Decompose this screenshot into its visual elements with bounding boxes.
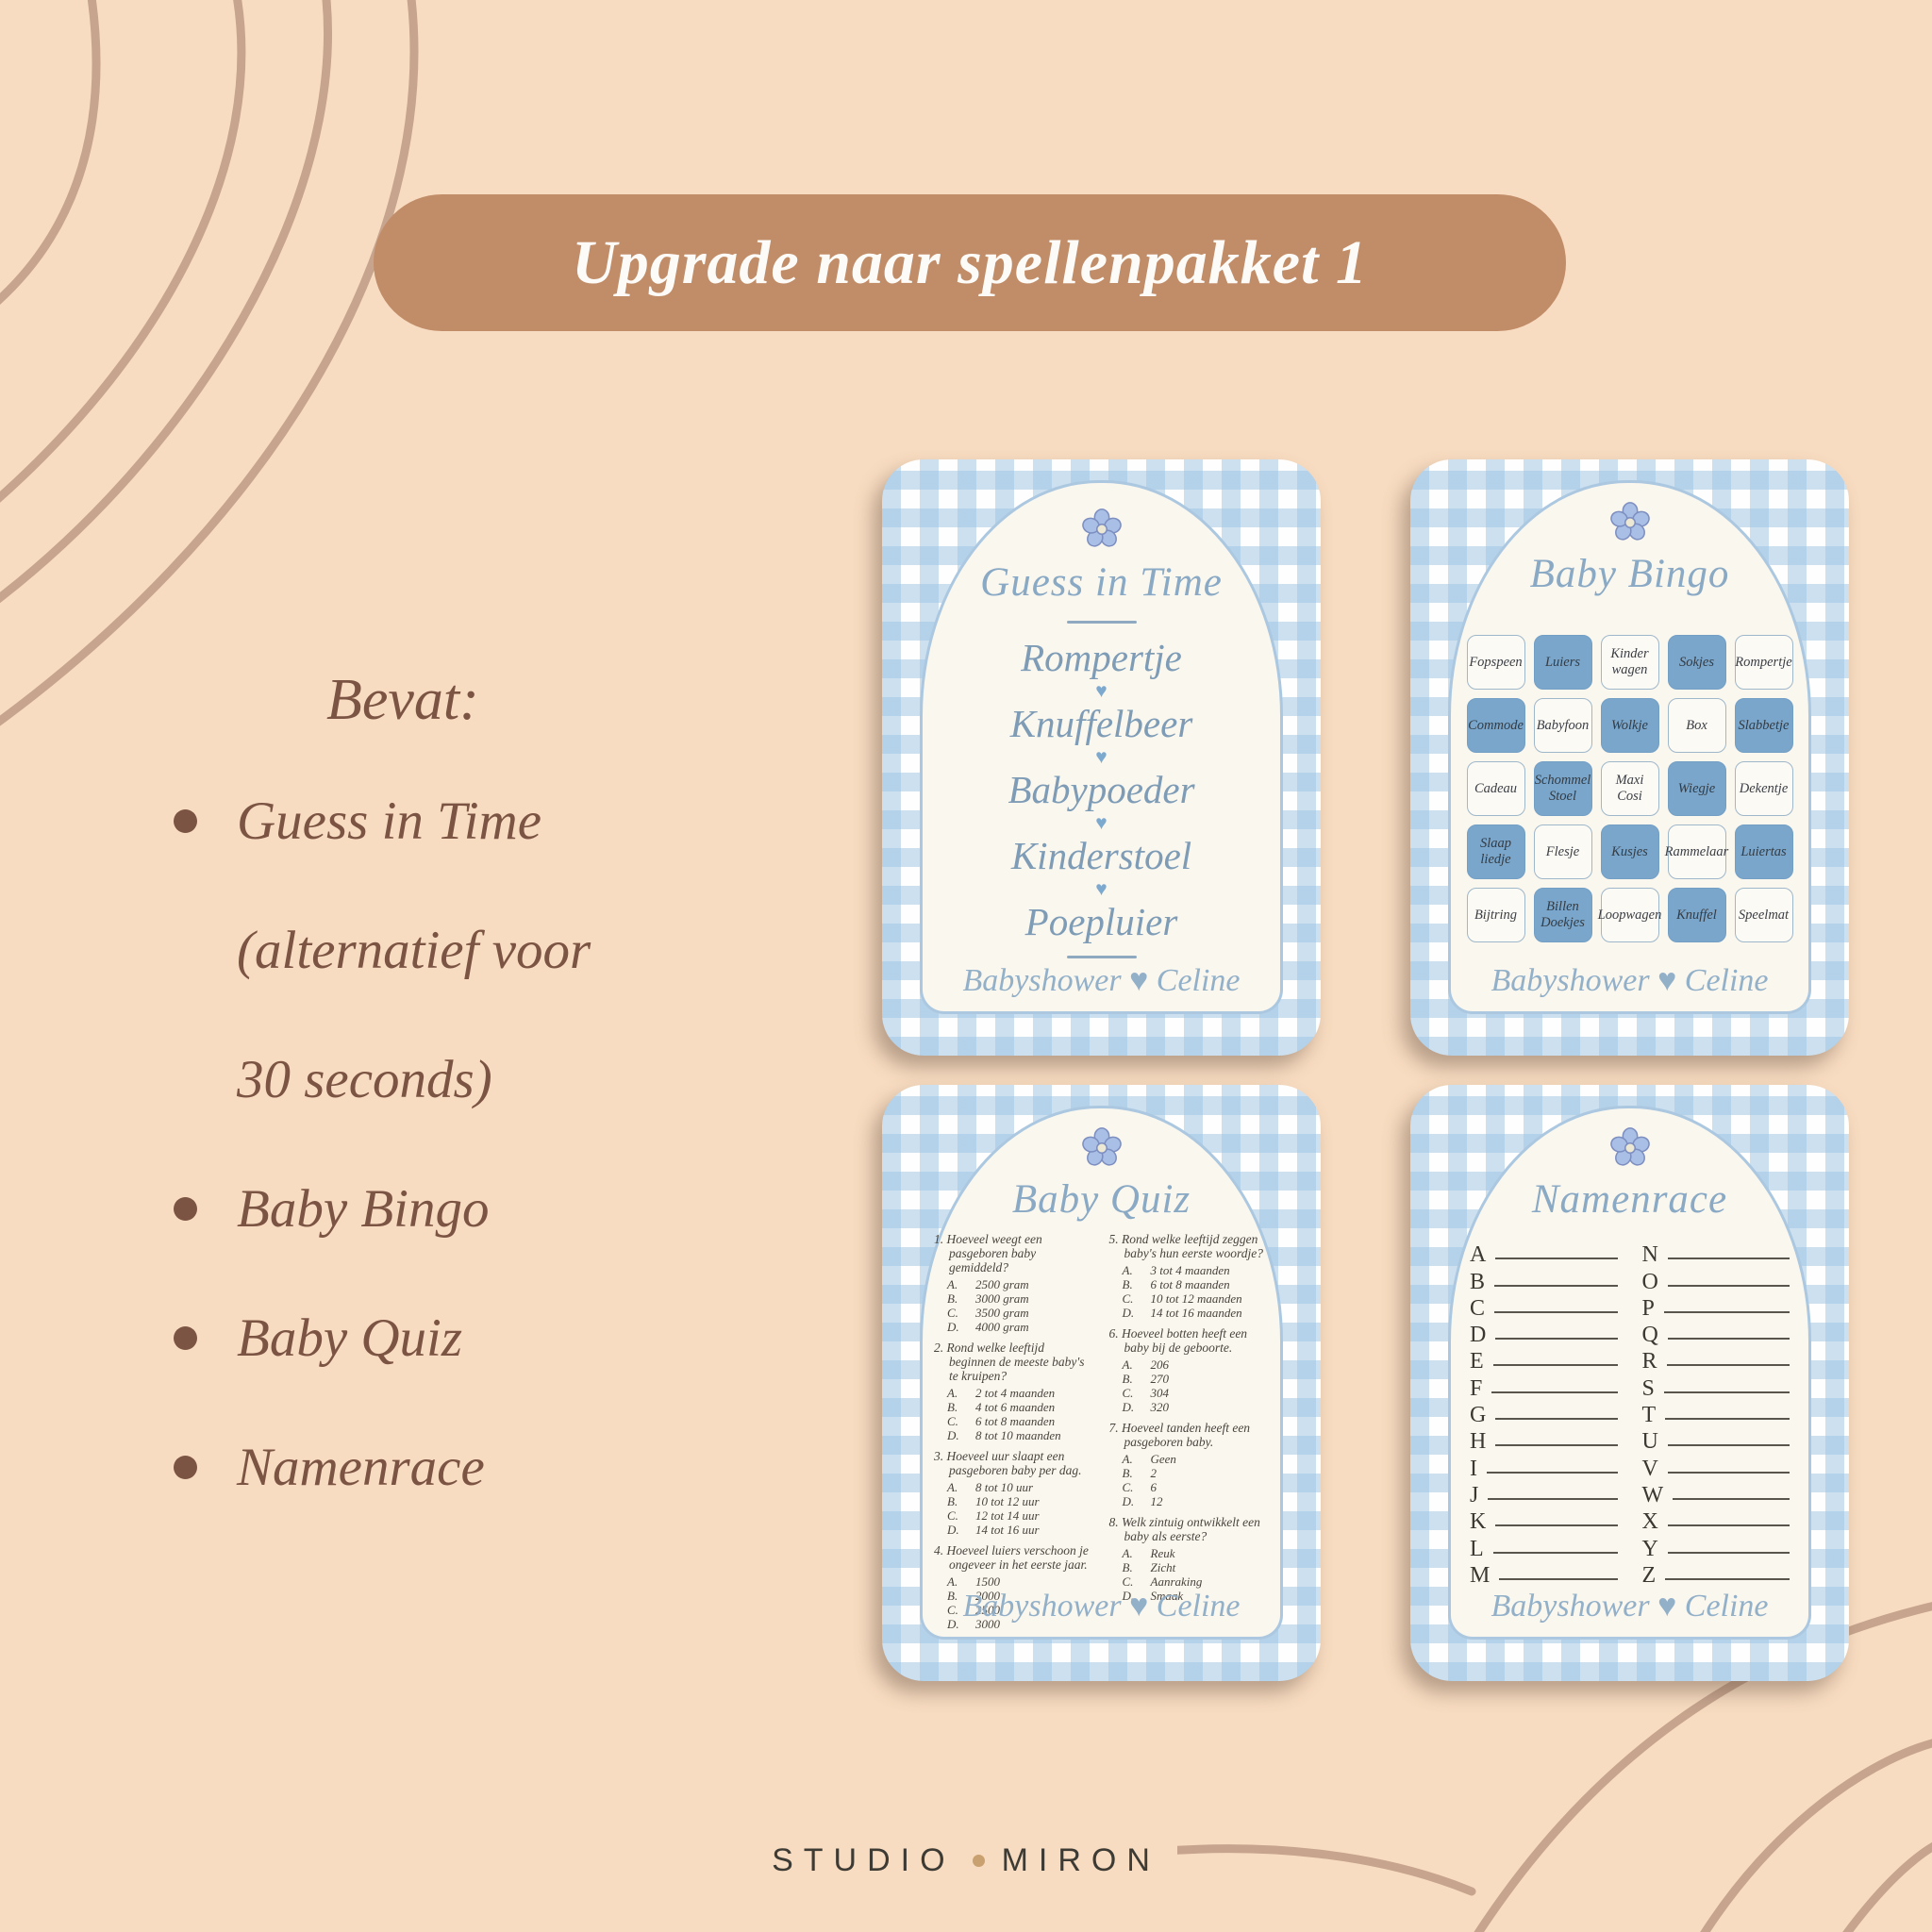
card-title: Baby Quiz	[1012, 1175, 1191, 1224]
write-line	[1668, 1257, 1790, 1259]
bullet-dot	[174, 1197, 197, 1221]
card-panel: Namenrace A B C D E F G H I J K L M	[1448, 1106, 1811, 1640]
write-line	[1493, 1364, 1618, 1366]
option-text: 270	[1151, 1372, 1270, 1386]
option-letter: C.	[1123, 1386, 1151, 1400]
options: A.3 tot 4 maanden B.6 tot 8 maanden C.10…	[1109, 1263, 1270, 1320]
option: A.8 tot 10 uur	[947, 1480, 1094, 1494]
letter-column-right: N O P Q R S T U V W X Y Z	[1642, 1240, 1790, 1587]
write-line	[1494, 1311, 1617, 1313]
letter-row: Q	[1642, 1320, 1790, 1346]
card-title: Baby Bingo	[1530, 550, 1730, 599]
option: A.2 tot 4 maanden	[947, 1386, 1094, 1400]
heart-icon: ♥	[1095, 880, 1107, 897]
bingo-cell: Luiers	[1534, 635, 1592, 690]
option: B.6 tot 8 maanden	[1123, 1277, 1270, 1291]
write-line	[1668, 1444, 1790, 1446]
letter-row: T	[1642, 1400, 1790, 1426]
option: B.270	[1123, 1372, 1270, 1386]
card-baby-quiz: Baby Quiz 1. Hoeveel weegt een pasgebore…	[882, 1085, 1321, 1681]
option-letter: D.	[947, 1523, 975, 1537]
option: D.14 tot 16 maanden	[1123, 1306, 1270, 1320]
letter: K	[1470, 1510, 1486, 1533]
option-letter: A.	[947, 1386, 975, 1400]
write-line	[1664, 1391, 1790, 1393]
option-text: 14 tot 16 maanden	[1151, 1306, 1270, 1320]
divider	[1067, 621, 1137, 624]
write-line	[1668, 1524, 1790, 1526]
letter-row: V	[1642, 1453, 1790, 1479]
option: D.4000 gram	[947, 1320, 1094, 1334]
letter-row: X	[1642, 1507, 1790, 1533]
letter: B	[1470, 1271, 1485, 1293]
game-word: Poepluier	[1025, 897, 1178, 946]
quiz-question: 3. Hoeveel uur slaapt een pasgeboren bab…	[934, 1449, 1094, 1537]
letter-row: Y	[1642, 1533, 1790, 1559]
bingo-cell: Commode	[1467, 698, 1525, 753]
game-word: Kinderstoel	[1011, 831, 1191, 880]
brand-word-right: MIRON	[1002, 1841, 1160, 1879]
letter-row: Z	[1642, 1560, 1790, 1587]
card-title: Guess in Time	[980, 558, 1223, 608]
list-item: Baby Bingo	[160, 1144, 840, 1274]
option-letter: C.	[1123, 1291, 1151, 1306]
question-text: 5. Rond welke leeftijd zeggen baby's hun…	[1109, 1232, 1270, 1260]
letter-column-left: A B C D E F G H I J K L M	[1470, 1240, 1618, 1587]
bingo-cell: Knuffel	[1668, 888, 1726, 942]
letter: A	[1470, 1243, 1486, 1266]
question-text: 2. Rond welke leeftijd beginnen de meest…	[934, 1341, 1094, 1383]
letter: W	[1642, 1484, 1664, 1507]
letter-row: O	[1642, 1266, 1790, 1292]
write-line	[1499, 1578, 1617, 1580]
option-text: Reuk	[1151, 1546, 1270, 1560]
brand-dot-icon	[973, 1855, 985, 1867]
option-text: 6 tot 8 maanden	[975, 1414, 1094, 1428]
option: A.3 tot 4 maanden	[1123, 1263, 1270, 1277]
bingo-cell: Babyfoon	[1534, 698, 1592, 753]
bingo-cell: Bijtring	[1467, 888, 1525, 942]
question-text: 3. Hoeveel uur slaapt een pasgeboren bab…	[934, 1449, 1094, 1477]
letter: T	[1642, 1404, 1657, 1426]
option-letter: C.	[947, 1414, 975, 1428]
letter-row: W	[1642, 1480, 1790, 1507]
option-letter: A.	[947, 1277, 975, 1291]
options: A.8 tot 10 uur B.10 tot 12 uur C.12 tot …	[934, 1480, 1094, 1537]
option-text: 2 tot 4 maanden	[975, 1386, 1094, 1400]
bingo-cell: Loopwagen	[1601, 888, 1659, 942]
list-item-text: Baby Quiz	[237, 1274, 462, 1403]
option-text: Zicht	[1151, 1560, 1270, 1574]
letter: D	[1470, 1324, 1486, 1346]
card-guess-in-time: Guess in Time Rompertje ♥ Knuffelbeer ♥ …	[882, 459, 1321, 1056]
option: A.Reuk	[1123, 1546, 1270, 1560]
question-text: 4. Hoeveel luiers verschoon je ongeveer …	[934, 1543, 1094, 1572]
letter: C	[1470, 1297, 1485, 1320]
flower-icon	[1608, 501, 1652, 544]
letter-row: N	[1642, 1240, 1790, 1266]
option-text: 4000 gram	[975, 1320, 1094, 1334]
card-baby-bingo: Baby Bingo Fopspeen Luiers Kinder wagen …	[1410, 459, 1849, 1056]
flower-icon	[1608, 1126, 1652, 1170]
bingo-cell: Flesje	[1534, 824, 1592, 879]
bingo-cell: Wiegje	[1668, 761, 1726, 816]
option: B.2	[1123, 1466, 1270, 1480]
option: C.304	[1123, 1386, 1270, 1400]
option-letter: B.	[947, 1400, 975, 1414]
quiz-question: 6. Hoeveel botten heeft een baby bij de …	[1109, 1326, 1270, 1414]
bingo-cell: Dekentje	[1735, 761, 1793, 816]
letter: X	[1642, 1510, 1658, 1533]
heart-icon: ♥	[1095, 748, 1107, 765]
write-line	[1491, 1391, 1617, 1393]
bingo-cell: Slaap liedje	[1467, 824, 1525, 879]
card-footer: Babyshower ♥ Celine	[923, 1589, 1280, 1624]
option-letter: D.	[947, 1320, 975, 1334]
option: A.206	[1123, 1357, 1270, 1372]
bingo-cell: Slabbetje	[1735, 698, 1793, 753]
letter-row: K	[1470, 1507, 1618, 1533]
letter: I	[1470, 1457, 1477, 1480]
bingo-cell: Billen Doekjes	[1534, 888, 1592, 942]
heart-icon: ♥	[1095, 682, 1107, 699]
card-title: Namenrace	[1532, 1175, 1727, 1224]
option-text: 3500 gram	[975, 1306, 1094, 1320]
write-line	[1495, 1444, 1617, 1446]
word-list: Rompertje ♥ Knuffelbeer ♥ Babypoeder ♥ K…	[1008, 633, 1194, 946]
options: A.206 B.270 C.304 D.320	[1109, 1357, 1270, 1414]
option: A.1500	[947, 1574, 1094, 1589]
letter: O	[1642, 1271, 1658, 1293]
letter: P	[1642, 1297, 1655, 1320]
option-letter: A.	[1123, 1357, 1151, 1372]
contains-list: Guess in Time (alternatief voor 30 secon…	[160, 757, 840, 1532]
letter-row: U	[1642, 1426, 1790, 1453]
question-text: 7. Hoeveel tanden heeft een pasgeboren b…	[1109, 1421, 1270, 1449]
letter: H	[1470, 1430, 1486, 1453]
options: A.2 tot 4 maanden B.4 tot 6 maanden C.6 …	[934, 1386, 1094, 1442]
write-line	[1665, 1578, 1790, 1580]
letter-row: A	[1470, 1240, 1618, 1266]
option: C.Aanraking	[1123, 1574, 1270, 1589]
letter: V	[1642, 1457, 1658, 1480]
option-text: Aanraking	[1151, 1574, 1270, 1589]
letter: F	[1470, 1377, 1482, 1400]
write-line	[1665, 1418, 1790, 1420]
option-letter: C.	[1123, 1574, 1151, 1589]
write-line	[1493, 1552, 1618, 1554]
option: B.4 tot 6 maanden	[947, 1400, 1094, 1414]
option: D.320	[1123, 1400, 1270, 1414]
letter-row: L	[1470, 1533, 1618, 1559]
letter-row: C	[1470, 1293, 1618, 1320]
write-line	[1668, 1285, 1790, 1287]
quiz-columns: 1. Hoeveel weegt een pasgeboren baby gem…	[923, 1232, 1280, 1638]
bullet-dot	[174, 1456, 197, 1479]
option-letter: D.	[1123, 1494, 1151, 1508]
option-letter: C.	[947, 1508, 975, 1523]
option: A.2500 gram	[947, 1277, 1094, 1291]
option-letter: D.	[947, 1428, 975, 1442]
option-text: Geen	[1151, 1452, 1270, 1466]
option-text: 12 tot 14 uur	[975, 1508, 1094, 1523]
letter-row: B	[1470, 1266, 1618, 1292]
write-line	[1495, 1257, 1617, 1259]
option-text: 14 tot 16 uur	[975, 1523, 1094, 1537]
bingo-cell: Sokjes	[1668, 635, 1726, 690]
option-letter: D.	[1123, 1400, 1151, 1414]
bingo-cell: Wolkje	[1601, 698, 1659, 753]
option-text: 12	[1151, 1494, 1270, 1508]
letter-row: J	[1470, 1480, 1618, 1507]
option: C.6 tot 8 maanden	[947, 1414, 1094, 1428]
option-text: 8 tot 10 maanden	[975, 1428, 1094, 1442]
write-line	[1668, 1338, 1790, 1340]
list-item-text: Namenrace	[237, 1403, 485, 1532]
option: D.12	[1123, 1494, 1270, 1508]
bingo-cell: Maxi Cosi	[1601, 761, 1659, 816]
banner-title: Upgrade naar spellenpakket 1	[572, 227, 1368, 299]
option-text: 10 tot 12 maanden	[1151, 1291, 1270, 1306]
bullet-dot	[174, 1326, 197, 1350]
letter: J	[1470, 1484, 1478, 1507]
game-word: Knuffelbeer	[1010, 699, 1193, 748]
write-line	[1668, 1552, 1790, 1554]
option: D.8 tot 10 maanden	[947, 1428, 1094, 1442]
option-letter: B.	[1123, 1560, 1151, 1574]
option-text: 8 tot 10 uur	[975, 1480, 1094, 1494]
letter-row: G	[1470, 1400, 1618, 1426]
option-text: 3 tot 4 maanden	[1151, 1263, 1270, 1277]
heart-icon: ♥	[1095, 814, 1107, 831]
option-letter: B.	[1123, 1466, 1151, 1480]
letter: S	[1642, 1377, 1655, 1400]
option-text: 1500	[975, 1574, 1094, 1589]
letter-row: I	[1470, 1453, 1618, 1479]
bingo-cell: Kusjes	[1601, 824, 1659, 879]
card-panel: Guess in Time Rompertje ♥ Knuffelbeer ♥ …	[920, 480, 1283, 1014]
option-text: 206	[1151, 1357, 1270, 1372]
bingo-cell: Kinder wagen	[1601, 635, 1659, 690]
option-letter: B.	[1123, 1277, 1151, 1291]
flower-icon	[1080, 508, 1124, 551]
option-letter: D.	[1123, 1306, 1151, 1320]
quiz-question: 5. Rond welke leeftijd zeggen baby's hun…	[1109, 1232, 1270, 1320]
quiz-question: 1. Hoeveel weegt een pasgeboren baby gem…	[934, 1232, 1094, 1334]
letter: M	[1470, 1564, 1490, 1587]
divider	[1067, 956, 1137, 958]
letter-row: M	[1470, 1560, 1618, 1587]
letter: Z	[1642, 1564, 1657, 1587]
options: A.2500 gram B.3000 gram C.3500 gram D.40…	[934, 1277, 1094, 1334]
letter-row: P	[1642, 1293, 1790, 1320]
write-line	[1495, 1338, 1617, 1340]
letter: Q	[1642, 1324, 1658, 1346]
letter: G	[1470, 1404, 1486, 1426]
option-text: 320	[1151, 1400, 1270, 1414]
banner: Upgrade naar spellenpakket 1	[374, 194, 1566, 331]
option: C.3500 gram	[947, 1306, 1094, 1320]
letter-columns: A B C D E F G H I J K L M N O P	[1451, 1240, 1808, 1587]
option-letter: B.	[1123, 1372, 1151, 1386]
list-item: Guess in Time (alternatief voor 30 secon…	[160, 757, 840, 1144]
write-line	[1667, 1364, 1790, 1366]
option-letter: C.	[947, 1306, 975, 1320]
write-line	[1664, 1311, 1790, 1313]
letter-row: F	[1470, 1373, 1618, 1399]
write-line	[1495, 1418, 1617, 1420]
game-word: Babypoeder	[1008, 765, 1194, 814]
option-letter: A.	[947, 1480, 975, 1494]
option-text: 10 tot 12 uur	[975, 1494, 1094, 1508]
option-letter: B.	[947, 1291, 975, 1306]
card-panel: Baby Quiz 1. Hoeveel weegt een pasgebore…	[920, 1106, 1283, 1640]
letter-row: E	[1470, 1346, 1618, 1373]
letter: L	[1470, 1538, 1484, 1560]
option: C.12 tot 14 uur	[947, 1508, 1094, 1523]
letter-row: S	[1642, 1373, 1790, 1399]
option-letter: B.	[947, 1494, 975, 1508]
option: A.Geen	[1123, 1452, 1270, 1466]
bingo-cell: Schommel Stoel	[1534, 761, 1592, 816]
question-text: 8. Welk zintuig ontwikkelt een baby als …	[1109, 1515, 1270, 1543]
list-item-text: Baby Bingo	[237, 1144, 490, 1274]
letter-row: R	[1642, 1346, 1790, 1373]
option-letter: A.	[1123, 1546, 1151, 1560]
letter: R	[1642, 1350, 1657, 1373]
bullet-dot	[174, 809, 197, 833]
option-letter: A.	[1123, 1452, 1151, 1466]
option-text: 2	[1151, 1466, 1270, 1480]
card-footer: Babyshower ♥ Celine	[1451, 963, 1808, 999]
write-line	[1673, 1498, 1790, 1500]
flower-icon	[1080, 1126, 1124, 1170]
option-text: 2500 gram	[975, 1277, 1094, 1291]
option-text: 6	[1151, 1480, 1270, 1494]
option-letter: C.	[1123, 1480, 1151, 1494]
contains-heading: Bevat:	[326, 643, 479, 757]
write-line	[1487, 1472, 1618, 1474]
quiz-question: 2. Rond welke leeftijd beginnen de meest…	[934, 1341, 1094, 1442]
bingo-cell: Cadeau	[1467, 761, 1525, 816]
options: A.Geen B.2 C.6 D.12	[1109, 1452, 1270, 1508]
write-line	[1668, 1472, 1790, 1474]
option: B.Zicht	[1123, 1560, 1270, 1574]
question-text: 1. Hoeveel weegt een pasgeboren baby gem…	[934, 1232, 1094, 1274]
option: C.10 tot 12 maanden	[1123, 1291, 1270, 1306]
letter-row: D	[1470, 1320, 1618, 1346]
list-item: Namenrace	[160, 1403, 840, 1532]
card-footer: Babyshower ♥ Celine	[1451, 1589, 1808, 1624]
card-panel: Baby Bingo Fopspeen Luiers Kinder wagen …	[1448, 480, 1811, 1014]
option-letter: A.	[1123, 1263, 1151, 1277]
bingo-grid: Fopspeen Luiers Kinder wagen Sokjes Romp…	[1467, 635, 1793, 942]
letter: E	[1470, 1350, 1484, 1373]
quiz-question: 7. Hoeveel tanden heeft een pasgeboren b…	[1109, 1421, 1270, 1508]
write-line	[1488, 1498, 1617, 1500]
brand-word-left: STUDIO	[772, 1841, 955, 1879]
game-word: Rompertje	[1021, 633, 1182, 682]
letter: N	[1642, 1243, 1658, 1266]
bingo-cell: Speelmat	[1735, 888, 1793, 942]
letter-row: H	[1470, 1426, 1618, 1453]
bingo-cell: Fopspeen	[1467, 635, 1525, 690]
brand-logo: STUDIO MIRON	[0, 1841, 1932, 1879]
option: C.6	[1123, 1480, 1270, 1494]
write-line	[1494, 1285, 1617, 1287]
letter: U	[1642, 1430, 1658, 1453]
write-line	[1495, 1524, 1617, 1526]
card-namenrace: Namenrace A B C D E F G H I J K L M	[1410, 1085, 1849, 1681]
option: B.3000 gram	[947, 1291, 1094, 1306]
corner-squiggle-top-left-icon	[0, 0, 528, 745]
option-text: 4 tot 6 maanden	[975, 1400, 1094, 1414]
letter: Y	[1642, 1538, 1658, 1560]
option-text: 6 tot 8 maanden	[1151, 1277, 1270, 1291]
option: D.14 tot 16 uur	[947, 1523, 1094, 1537]
option-letter: A.	[947, 1574, 975, 1589]
bingo-cell: Box	[1668, 698, 1726, 753]
quiz-column-right: 5. Rond welke leeftijd zeggen baby's hun…	[1109, 1232, 1270, 1638]
question-text: 6. Hoeveel botten heeft een baby bij de …	[1109, 1326, 1270, 1355]
list-item: Baby Quiz	[160, 1274, 840, 1403]
option: B.10 tot 12 uur	[947, 1494, 1094, 1508]
card-footer: Babyshower ♥ Celine	[923, 963, 1280, 999]
quiz-column-left: 1. Hoeveel weegt een pasgeboren baby gem…	[934, 1232, 1094, 1638]
list-item-text: Guess in Time (alternatief voor 30 secon…	[237, 757, 591, 1144]
option-text: 3000 gram	[975, 1291, 1094, 1306]
bingo-cell: Rammelaar	[1668, 824, 1726, 879]
bingo-cell: Rompertje	[1735, 635, 1793, 690]
bingo-cell: Luiertas	[1735, 824, 1793, 879]
option-text: 304	[1151, 1386, 1270, 1400]
